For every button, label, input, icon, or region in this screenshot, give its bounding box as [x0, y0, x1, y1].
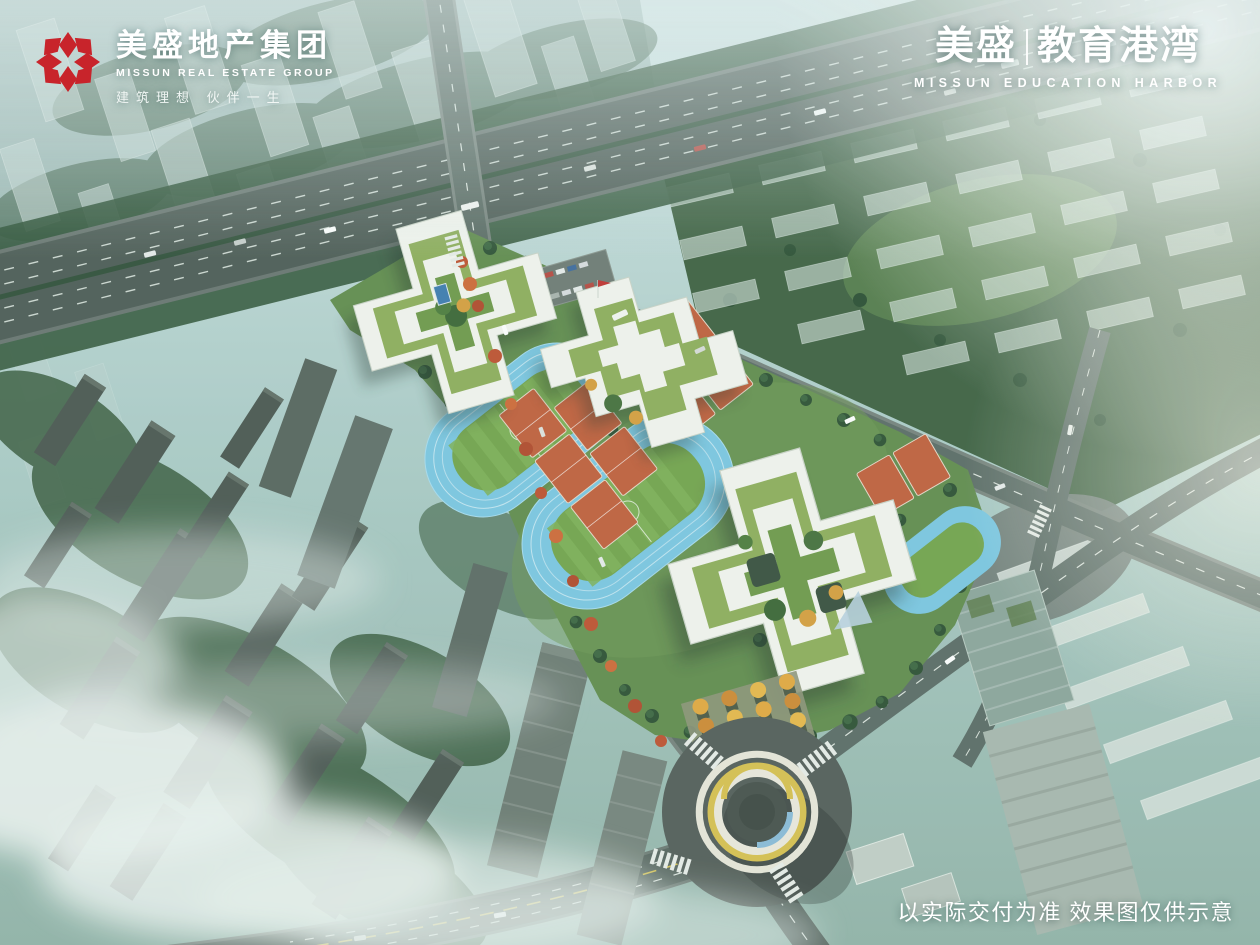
aerial-rendering-scene: [0, 0, 1260, 945]
color-cast: [0, 0, 1260, 945]
project-brand-en: MISSUN EDUCATION HARBOR: [914, 76, 1222, 90]
developer-name-cn: 美盛地产集团: [116, 28, 335, 64]
brand-divider: [1026, 29, 1028, 65]
developer-slogan: 建筑理想 伙伴一生: [116, 87, 335, 106]
project-brand-left: 美盛: [935, 26, 1017, 69]
missun-flower-icon: [34, 28, 102, 100]
developer-name-en: MISSUN REAL ESTATE GROUP: [116, 67, 335, 79]
project-brand-right: 教育港湾: [1037, 26, 1201, 69]
disclaimer-text: 以实际交付为准 效果图仅供示意: [897, 895, 1234, 927]
developer-logo-lockup: 美盛地产集团 MISSUN REAL ESTATE GROUP 建筑理想 伙伴一…: [34, 28, 335, 106]
rendering-poster: 美盛地产集团 MISSUN REAL ESTATE GROUP 建筑理想 伙伴一…: [0, 0, 1260, 945]
project-brand-lockup: 美盛 教育港湾 MISSUN EDUCATION HARBOR: [914, 26, 1222, 90]
